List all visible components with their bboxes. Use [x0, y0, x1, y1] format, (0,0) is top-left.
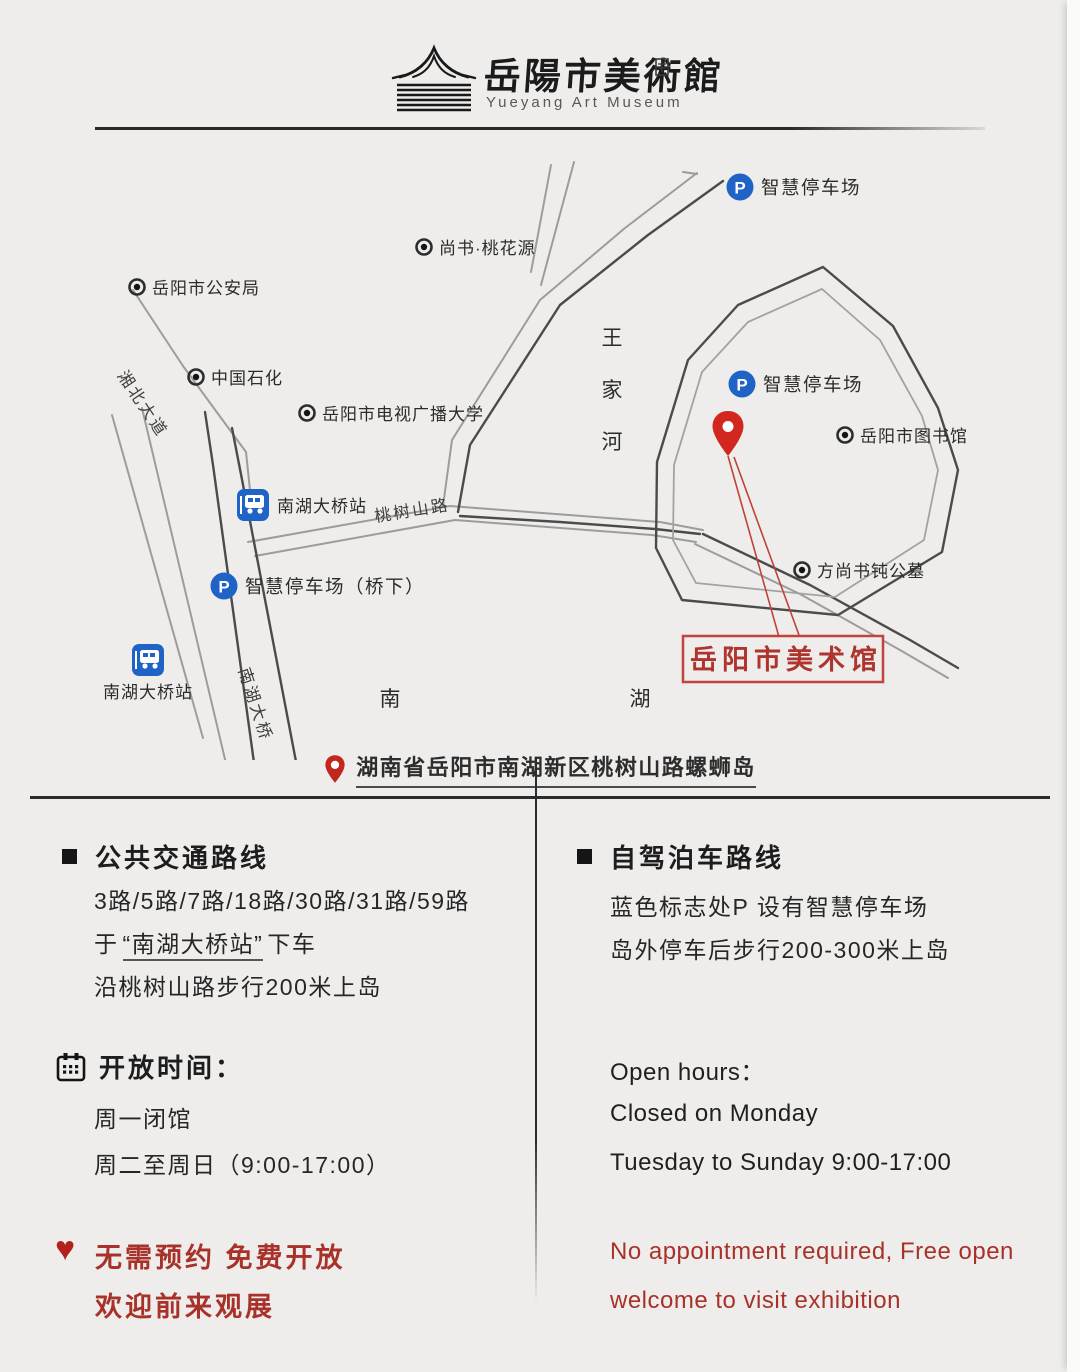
map-poi-label: 尚书·桃花源 — [439, 239, 536, 258]
area-label-char: 王 — [602, 327, 623, 350]
area-label: 南 — [380, 688, 401, 711]
hours-section-title: 开放时间： — [99, 1048, 244, 1085]
map-poi-label: 中国石化 — [211, 369, 283, 388]
drive-section-title: 自驾泊车路线 — [610, 838, 784, 875]
hours-en-line-1: Closed on Monday — [610, 1100, 818, 1128]
road-label: 南湖大桥 — [234, 665, 276, 743]
notice-line-cn-1: 无需预约 免费开放 — [95, 1236, 346, 1275]
board-station: “南湖大桥站” — [123, 931, 264, 961]
transit-board-line: 于“南湖大桥站”下车 — [94, 925, 316, 959]
board-suffix: 下车 — [267, 931, 316, 957]
square-bullet-icon — [62, 849, 77, 864]
notice-line-en-2: welcome to visit exhibition — [610, 1287, 901, 1315]
bus-stop-label: 南湖大桥站 — [103, 683, 193, 702]
transit-title-row: 公共交通路线 — [62, 838, 269, 875]
parking-p-icon: P — [734, 179, 745, 198]
logo-seal-icon — [655, 58, 669, 76]
logo-title-en: Yueyang Art Museum — [486, 94, 661, 111]
drive-title-row: 自驾泊车路线 — [577, 838, 784, 875]
calendar-icon — [55, 1051, 87, 1083]
drive-line-1: 蓝色标志处P 设有智慧停车场 — [610, 888, 928, 922]
square-bullet-icon — [577, 849, 592, 864]
map-poi: 岳阳市公安局 — [130, 279, 261, 298]
hours-en-title: Open hours： — [610, 1052, 765, 1087]
museum-pointer-line — [728, 456, 779, 637]
logo-title-cn: 岳陽市美術館 — [482, 46, 726, 100]
parking-label: 智慧停车场 — [761, 177, 861, 198]
bus-stop-label: 南湖大桥站 — [277, 497, 367, 516]
pavilion-logo-icon — [389, 40, 479, 115]
bus-stop-marker: 南湖大桥站 — [237, 489, 367, 521]
drive-line-2: 岛外停车后步行200-300米上岛 — [610, 931, 950, 965]
section-divider — [30, 796, 1050, 799]
parking-p-icon: P — [218, 578, 229, 597]
road-label: 桃树山路 — [373, 495, 451, 526]
parking-marker: P智慧停车场 — [727, 174, 862, 201]
map-poi-label: 方尚书钝公墓 — [817, 562, 925, 581]
address-pin-icon — [324, 754, 346, 784]
notice-line-en-1: No appointment required, Free open — [610, 1238, 1014, 1266]
hours-title-row: 开放时间： — [55, 1048, 244, 1085]
area-label: 湖 — [630, 688, 651, 711]
map-poi-label: 岳阳市图书馆 — [860, 427, 968, 446]
transit-routes-line: 3路/5路/7路/18路/30路/31路/59路 — [94, 882, 470, 916]
area-label-char: 河 — [602, 431, 623, 454]
map-poi: 岳阳市图书馆 — [838, 427, 969, 446]
parking-marker: P智慧停车场 — [729, 371, 864, 398]
page-edge-strip — [1067, 0, 1080, 1372]
parking-label: 智慧停车场（桥下） — [245, 576, 425, 597]
hours-en-line-2: Tuesday to Sunday 9:00-17:00 — [610, 1149, 951, 1177]
address-row: 湖南省岳阳市南湖新区桃树山路螺蛳岛 — [0, 750, 1080, 788]
parking-label: 智慧停车场 — [763, 374, 863, 395]
area-label-char: 家 — [602, 379, 623, 402]
parking-marker: P智慧停车场（桥下） — [211, 573, 426, 600]
map-poi: 尚书·桃花源 — [417, 239, 536, 258]
heart-icon: ♥ — [55, 1232, 75, 1266]
hours-line-closed: 周一闭馆 — [94, 1100, 192, 1134]
map-poi-label: 岳阳市公安局 — [152, 279, 260, 298]
map-poi-label: 岳阳市电视广播大学 — [322, 405, 484, 424]
map-poi: 岳阳市电视广播大学 — [300, 405, 485, 424]
header-divider — [95, 127, 985, 130]
road-label: 湘北大道 — [113, 367, 171, 441]
map-svg: 尚书·桃花源岳阳市公安局中国石化岳阳市电视广播大学岳阳市图书馆方尚书钝公墓 桃树… — [0, 140, 1080, 760]
parking-p-icon: P — [736, 376, 747, 395]
address-text: 湖南省岳阳市南湖新区桃树山路螺蛳岛 — [356, 750, 756, 788]
map-poi: 中国石化 — [189, 369, 284, 388]
map-poi: 方尚书钝公墓 — [795, 562, 926, 581]
museum-label: 岳阳市美术馆 — [690, 644, 882, 675]
notice-line-cn-2: 欢迎前来观展 — [95, 1285, 275, 1324]
transit-walk-line: 沿桃树山路步行200米上岛 — [94, 968, 382, 1002]
museum-pin-icon — [713, 411, 744, 456]
page: 岳陽市美術館 Yueyang Art Museum — [0, 0, 1080, 1372]
hours-line-open: 周二至周日（9:00-17:00） — [94, 1146, 390, 1180]
column-divider — [535, 758, 537, 1303]
board-prefix: 于 — [94, 931, 119, 957]
transit-section-title: 公共交通路线 — [95, 838, 269, 875]
poi-layer: 尚书·桃花源岳阳市公安局中国石化岳阳市电视广播大学岳阳市图书馆方尚书钝公墓 — [130, 239, 969, 581]
museum-pin-dot — [723, 421, 734, 432]
